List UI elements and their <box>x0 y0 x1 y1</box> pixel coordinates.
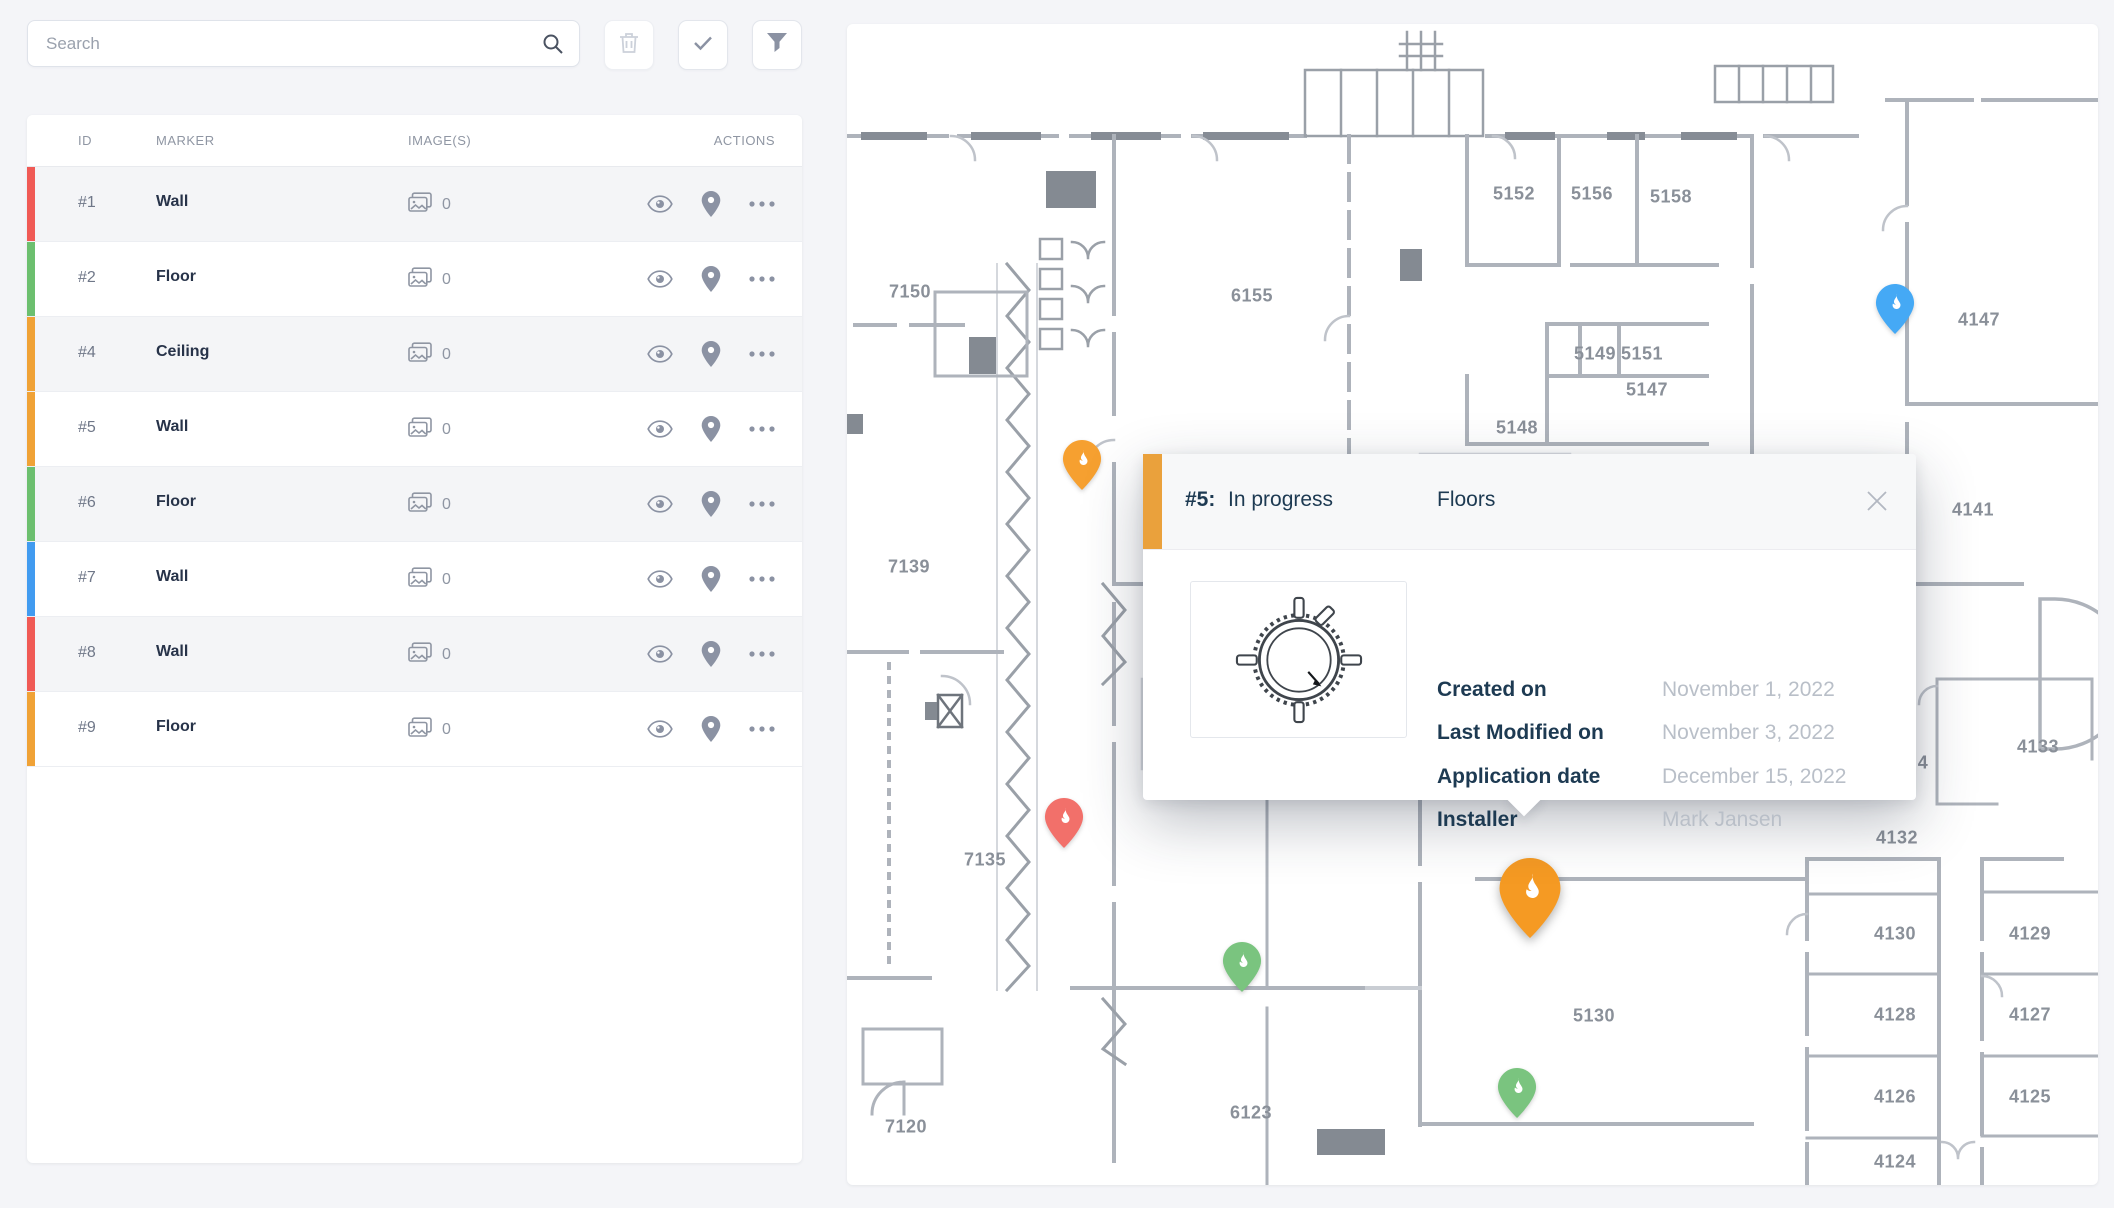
room-label: 5156 <box>1571 184 1613 205</box>
eye-icon[interactable] <box>647 195 673 213</box>
room-label: 5147 <box>1626 380 1668 401</box>
table-row[interactable]: #2 Floor 0 <box>27 242 802 317</box>
popup-status-accent <box>1143 454 1162 549</box>
check-icon <box>693 35 713 56</box>
header-actions: ACTIONS <box>714 133 775 148</box>
pin-green-2[interactable] <box>1497 1068 1537 1123</box>
image-count: 0 <box>442 571 451 589</box>
row-color-strip <box>27 167 35 241</box>
image-count: 0 <box>442 646 451 664</box>
image-count: 0 <box>442 196 451 214</box>
room-label: 4124 <box>1874 1152 1916 1173</box>
pin-red[interactable] <box>1044 798 1084 853</box>
room-label: 6155 <box>1231 286 1273 307</box>
image-count: 0 <box>442 346 451 364</box>
row-color-strip <box>27 617 35 691</box>
table-row[interactable]: #5 Wall 0 <box>27 392 802 467</box>
room-label: 7150 <box>889 282 931 303</box>
room-label: 4125 <box>2009 1087 2051 1108</box>
row-color-strip <box>27 392 35 466</box>
eye-icon[interactable] <box>647 645 673 663</box>
location-pin-icon[interactable] <box>701 191 721 217</box>
image-count: 0 <box>442 271 451 289</box>
room-label: 4126 <box>1874 1087 1916 1108</box>
location-pin-icon[interactable] <box>701 266 721 292</box>
popup-field-value: November 1, 2022 <box>1662 678 1835 702</box>
more-options-icon[interactable] <box>749 276 775 282</box>
location-pin-icon[interactable] <box>701 416 721 442</box>
row-id: #4 <box>78 344 96 362</box>
row-id: #7 <box>78 569 96 587</box>
confirm-button[interactable] <box>678 20 728 70</box>
table-row[interactable]: #4 Ceiling 0 <box>27 317 802 392</box>
header-images: IMAGE(S) <box>408 133 471 148</box>
row-marker: Floor <box>156 268 196 286</box>
room-label: 4 <box>1918 753 1929 774</box>
row-id: #2 <box>78 269 96 287</box>
room-label: 7139 <box>888 557 930 578</box>
room-label: 7135 <box>964 850 1006 871</box>
room-label: 5152 <box>1493 184 1535 205</box>
more-options-icon[interactable] <box>749 726 775 732</box>
photos-icon <box>408 192 433 218</box>
close-icon[interactable] <box>1864 488 1890 514</box>
pin-green[interactable] <box>1222 942 1262 997</box>
room-label: 5130 <box>1573 1006 1615 1027</box>
location-pin-icon[interactable] <box>701 491 721 517</box>
popup-field-label: Application date <box>1437 765 1662 789</box>
room-label: 6123 <box>1230 1103 1272 1124</box>
marker-table: ID MARKER IMAGE(S) ACTIONS #1 Wall 0 <box>27 115 802 1163</box>
marker-detail-popup: #5: In progress Floors <box>1143 454 1916 799</box>
image-count: 0 <box>442 721 451 739</box>
row-marker: Wall <box>156 643 188 661</box>
row-id: #9 <box>78 719 96 737</box>
row-marker: Floor <box>156 718 196 736</box>
location-pin-icon[interactable] <box>701 716 721 742</box>
row-color-strip <box>27 467 35 541</box>
row-id: #6 <box>78 494 96 512</box>
row-color-strip <box>27 317 35 391</box>
eye-icon[interactable] <box>647 495 673 513</box>
room-label: 5151 <box>1621 344 1663 365</box>
more-options-icon[interactable] <box>749 501 775 507</box>
more-options-icon[interactable] <box>749 201 775 207</box>
row-id: #8 <box>78 644 96 662</box>
table-row[interactable]: #6 Floor 0 <box>27 467 802 542</box>
table-row[interactable]: #9 Floor 0 <box>27 692 802 767</box>
location-pin-icon[interactable] <box>701 341 721 367</box>
table-row[interactable]: #7 Wall 0 <box>27 542 802 617</box>
popup-field-label: Last Modified on <box>1437 721 1662 745</box>
image-count: 0 <box>442 421 451 439</box>
table-row[interactable]: #1 Wall 0 <box>27 167 802 242</box>
more-options-icon[interactable] <box>749 576 775 582</box>
pin-blue[interactable] <box>1875 284 1915 339</box>
pin-orange[interactable] <box>1062 440 1102 495</box>
row-marker: Ceiling <box>156 343 209 361</box>
location-pin-icon[interactable] <box>701 641 721 667</box>
room-label: 5158 <box>1650 187 1692 208</box>
popup-field-value: December 15, 2022 <box>1662 765 1846 789</box>
location-pin-icon[interactable] <box>701 566 721 592</box>
photos-icon <box>408 267 433 293</box>
filter-button[interactable] <box>752 20 802 70</box>
eye-icon[interactable] <box>647 345 673 363</box>
header-marker: MARKER <box>156 133 215 148</box>
popup-field-value: November 3, 2022 <box>1662 721 1835 745</box>
row-color-strip <box>27 542 35 616</box>
popup-category: Floors <box>1437 488 1495 512</box>
floor-plan-map[interactable]: 7150615551525156515851495151514751484147… <box>847 24 2098 1185</box>
photos-icon <box>408 342 433 368</box>
photos-icon <box>408 717 433 743</box>
pin-orange-selected[interactable] <box>1498 858 1562 943</box>
popup-field: InstallerMark Jansen <box>1437 799 1887 842</box>
eye-icon[interactable] <box>647 720 673 738</box>
photos-icon <box>408 417 433 443</box>
eye-icon[interactable] <box>647 570 673 588</box>
table-row[interactable]: #8 Wall 0 <box>27 617 802 692</box>
more-options-icon[interactable] <box>749 351 775 357</box>
room-label: 4128 <box>1874 1005 1916 1026</box>
room-label: 4130 <box>1874 924 1916 945</box>
row-marker: Floor <box>156 493 196 511</box>
popup-status: In progress <box>1228 488 1333 512</box>
row-color-strip <box>27 242 35 316</box>
popup-field-label: Created on <box>1437 678 1662 702</box>
row-marker: Wall <box>156 568 188 586</box>
trash-icon <box>619 32 639 59</box>
room-label: 5148 <box>1496 418 1538 439</box>
row-marker: Wall <box>156 418 188 436</box>
search-field[interactable] <box>27 20 580 67</box>
popup-field: Last Modified onNovember 3, 2022 <box>1437 712 1887 755</box>
eye-icon[interactable] <box>647 270 673 288</box>
popup-field-value: Mark Jansen <box>1662 808 1782 832</box>
search-input[interactable] <box>27 20 580 67</box>
photos-icon <box>408 642 433 668</box>
more-options-icon[interactable] <box>749 426 775 432</box>
room-label: 4133 <box>2017 737 2059 758</box>
row-marker: Wall <box>156 193 188 211</box>
room-label: 7120 <box>885 1117 927 1138</box>
room-label: 4141 <box>1952 500 1994 521</box>
popup-field: Created onNovember 1, 2022 <box>1437 668 1887 711</box>
row-id: #5 <box>78 419 96 437</box>
room-label: 4127 <box>2009 1005 2051 1026</box>
popup-field: Application dateDecember 15, 2022 <box>1437 755 1887 798</box>
popup-body: Created onNovember 1, 2022Last Modified … <box>1143 550 1916 800</box>
room-label: 4129 <box>2009 924 2051 945</box>
room-label: 5149 <box>1574 344 1616 365</box>
eye-icon[interactable] <box>647 420 673 438</box>
row-color-strip <box>27 692 35 766</box>
popup-marker-id: #5: <box>1185 488 1215 512</box>
more-options-icon[interactable] <box>749 651 775 657</box>
popup-header: #5: In progress Floors <box>1143 454 1916 550</box>
table-header: ID MARKER IMAGE(S) ACTIONS <box>27 115 802 167</box>
image-count: 0 <box>442 496 451 514</box>
search-icon <box>542 33 564 60</box>
row-id: #1 <box>78 194 96 212</box>
marker-thumbnail[interactable] <box>1190 581 1407 738</box>
delete-button[interactable] <box>604 20 654 70</box>
photos-icon <box>408 492 433 518</box>
funnel-icon <box>767 33 787 58</box>
room-label: 4147 <box>1958 310 2000 331</box>
header-id: ID <box>78 133 92 148</box>
popup-field-label: Installer <box>1437 808 1662 832</box>
photos-icon <box>408 567 433 593</box>
